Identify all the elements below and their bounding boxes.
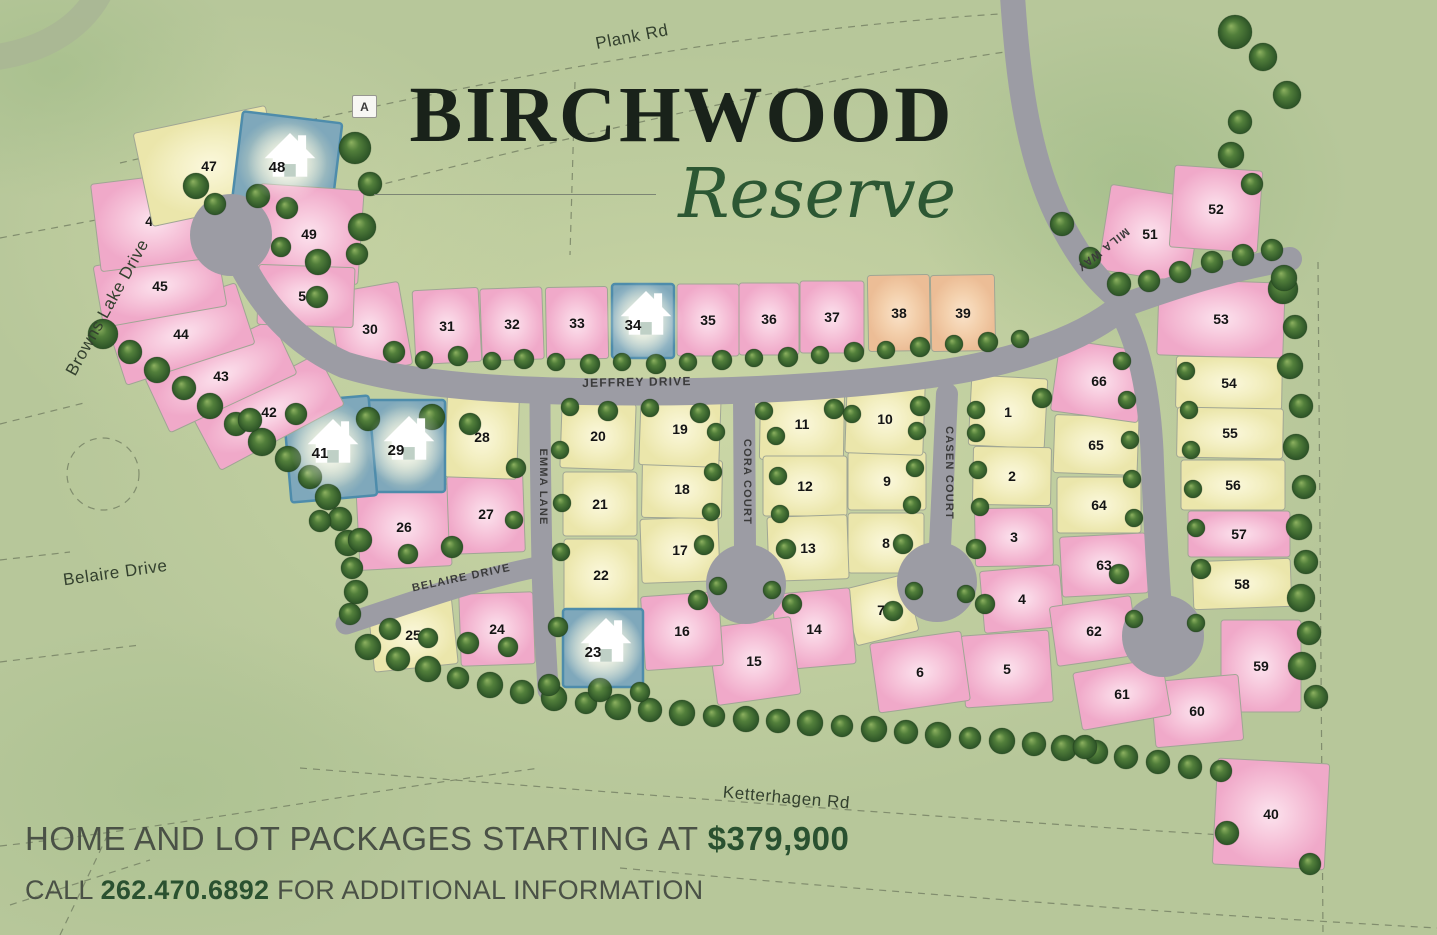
lot-4-number: 4 — [1018, 591, 1026, 607]
tree — [1218, 142, 1244, 168]
lot-52-number: 52 — [1208, 201, 1224, 217]
lot-39-number: 39 — [955, 305, 971, 321]
tree — [538, 674, 560, 696]
tree — [1182, 441, 1200, 459]
title-secondary: Reserve — [678, 159, 962, 230]
lot-54-number: 54 — [1221, 375, 1237, 391]
tree — [510, 680, 534, 704]
lot-62-number: 62 — [1086, 623, 1102, 639]
tree — [1283, 315, 1307, 339]
tree — [339, 132, 371, 164]
tree — [1232, 244, 1254, 266]
tree — [1032, 388, 1052, 408]
lot-65-number: 65 — [1088, 437, 1104, 453]
road-label-cora-court: CORA COURT — [741, 439, 753, 525]
lot-56-number: 56 — [1225, 477, 1241, 493]
lot-38-number: 38 — [891, 305, 907, 321]
tree — [945, 335, 963, 353]
footer-starting-price: $379,900 — [708, 820, 850, 857]
lot-29-number: 29 — [388, 442, 405, 459]
lot-23-sold-marker: 23 — [563, 608, 643, 688]
lot-5: 5 — [961, 630, 1054, 708]
lot-34-number: 34 — [625, 317, 642, 334]
tree — [978, 332, 998, 352]
tree — [1107, 272, 1131, 296]
tree — [346, 243, 368, 265]
tree — [975, 594, 995, 614]
road-label-jeffrey-drive: JEFFREY DRIVE — [582, 374, 692, 390]
road-surface-emma-lane-stub — [542, 566, 548, 690]
tree — [339, 603, 361, 625]
tree — [778, 347, 798, 367]
lot-55-number: 55 — [1222, 425, 1238, 441]
lot-6: 6 — [870, 631, 971, 713]
lot-24: 24 — [459, 592, 535, 667]
tree — [1283, 434, 1309, 460]
tree — [306, 286, 328, 308]
tree — [204, 193, 226, 215]
road-surface-casen-bulb — [897, 542, 977, 622]
tree — [679, 353, 697, 371]
lot-35: 35 — [677, 284, 739, 356]
tree — [709, 577, 727, 595]
lot-26-number: 26 — [396, 519, 412, 535]
tree — [694, 535, 714, 555]
title-primary: BIRCHWOOD — [402, 76, 962, 157]
tree — [348, 528, 372, 552]
tree — [457, 632, 479, 654]
footer-call-line: CALL 262.470.6892 FOR ADDITIONAL INFORMA… — [25, 875, 849, 906]
tree — [547, 353, 565, 371]
lot-14-number: 14 — [806, 621, 822, 637]
lot-63: 63 — [1059, 533, 1148, 597]
tree — [959, 727, 981, 749]
tree — [971, 498, 989, 516]
development-title: BIRCHWOOD Reserve — [402, 76, 962, 230]
lot-3-number: 3 — [1010, 529, 1018, 545]
lot-23-number: 23 — [585, 644, 602, 661]
tree — [1297, 621, 1321, 645]
tree — [1273, 81, 1301, 109]
lot-21-number: 21 — [592, 496, 608, 512]
tree — [459, 413, 481, 435]
tree — [415, 656, 441, 682]
tree — [1288, 652, 1316, 680]
lot-31-number: 31 — [439, 318, 455, 334]
tree — [1184, 480, 1202, 498]
tree — [561, 398, 579, 416]
road-label-emma-lane: EMMA LANE — [537, 449, 549, 526]
lot-8-number: 8 — [882, 535, 890, 551]
footer-call-text: CALL — [25, 875, 93, 905]
lot-59-number: 59 — [1253, 658, 1269, 674]
tree — [498, 637, 518, 657]
tree — [925, 722, 951, 748]
tree — [844, 342, 864, 362]
tree — [1011, 330, 1029, 348]
lot-32: 32 — [480, 287, 544, 361]
tree — [144, 357, 170, 383]
tree — [598, 401, 618, 421]
lot-20-number: 20 — [590, 428, 606, 444]
lot-60-number: 60 — [1189, 703, 1205, 719]
tree — [957, 585, 975, 603]
tree — [703, 705, 725, 727]
lot-17-number: 17 — [672, 542, 688, 558]
lot-21: 21 — [563, 472, 637, 536]
tree — [1180, 401, 1198, 419]
tree — [776, 539, 796, 559]
lot-58-number: 58 — [1234, 576, 1250, 592]
tree — [197, 393, 223, 419]
lot-44-number: 44 — [173, 326, 189, 342]
tree — [1191, 559, 1211, 579]
tree — [1022, 732, 1046, 756]
tree — [766, 709, 790, 733]
lot-13-number: 13 — [800, 540, 816, 556]
tree — [551, 441, 569, 459]
lot-22: 22 — [564, 539, 638, 611]
tree — [1114, 745, 1138, 769]
tree — [386, 647, 410, 671]
lot-51-number: 51 — [1142, 226, 1158, 242]
footer-packages-line: HOME AND LOT PACKAGES STARTING AT $379,9… — [25, 820, 849, 858]
tree — [415, 351, 433, 369]
tree — [355, 634, 381, 660]
lot-33-number: 33 — [569, 315, 585, 331]
footer: HOME AND LOT PACKAGES STARTING AT $379,9… — [25, 820, 849, 906]
lot-33: 33 — [545, 286, 608, 359]
tree — [883, 601, 903, 621]
tree — [824, 399, 844, 419]
lot-3: 3 — [974, 507, 1053, 566]
tree — [767, 427, 785, 445]
road-surface-east-bulb — [1122, 595, 1204, 677]
tree — [1215, 821, 1239, 845]
tree — [348, 213, 376, 241]
lot-36-number: 36 — [761, 311, 777, 327]
tree — [1121, 431, 1139, 449]
tree — [1177, 362, 1195, 380]
lot-29-sold-marker: 29 — [366, 406, 446, 486]
tree — [967, 424, 985, 442]
tree — [797, 710, 823, 736]
tree — [1118, 391, 1136, 409]
tree — [441, 536, 463, 558]
tree — [271, 237, 291, 257]
lot-6-number: 6 — [916, 664, 924, 680]
tree — [690, 403, 710, 423]
tree — [831, 715, 853, 737]
lot-15-number: 15 — [746, 653, 762, 669]
lot-10-number: 10 — [877, 411, 893, 427]
tree — [548, 617, 568, 637]
lot-48-number: 48 — [269, 159, 286, 176]
lot-45-number: 45 — [152, 278, 168, 294]
lot-24-number: 24 — [489, 621, 505, 637]
lot-40-number: 40 — [1263, 806, 1279, 822]
lot-57-number: 57 — [1231, 526, 1247, 542]
tree — [448, 346, 468, 366]
tree — [506, 458, 526, 478]
site-map-page: 1234567891011121314151617181920212224252… — [0, 0, 1437, 935]
tree — [769, 467, 787, 485]
tree — [1261, 239, 1283, 261]
lot-12-number: 12 — [797, 478, 813, 494]
footer-phone-number: 262.470.6892 — [101, 875, 270, 905]
tree — [906, 459, 924, 477]
tree — [843, 405, 861, 423]
lot-16-number: 16 — [674, 623, 690, 639]
tree — [669, 700, 695, 726]
tree — [1286, 514, 1312, 540]
lot-35-number: 35 — [700, 312, 716, 328]
tree — [1138, 270, 1160, 292]
tree — [1241, 173, 1263, 195]
lot-27-number: 27 — [478, 506, 494, 522]
lot-53-number: 53 — [1213, 311, 1229, 327]
tree — [1113, 352, 1131, 370]
tree — [328, 507, 352, 531]
tree — [1277, 353, 1303, 379]
tree — [712, 350, 732, 370]
lot-57: 57 — [1188, 511, 1290, 557]
tree — [1201, 251, 1223, 273]
lot-1-number: 1 — [1004, 404, 1012, 420]
tree — [969, 461, 987, 479]
tree — [552, 543, 570, 561]
lot-19-number: 19 — [672, 421, 688, 437]
lot-47-number: 47 — [201, 158, 217, 174]
lot-11-number: 11 — [795, 416, 810, 432]
tree — [1169, 261, 1191, 283]
tree — [910, 396, 930, 416]
tree — [755, 402, 773, 420]
lot-32-number: 32 — [504, 316, 520, 332]
lot-37-number: 37 — [824, 309, 840, 325]
tree — [483, 352, 501, 370]
tree — [763, 581, 781, 599]
tree — [1299, 853, 1321, 875]
lot-2-number: 2 — [1008, 468, 1016, 484]
lot-34-sold-marker: 34 — [603, 281, 683, 361]
road-label-casen-court: CASEN COURT — [943, 426, 955, 520]
tree — [580, 354, 600, 374]
tree — [398, 544, 418, 564]
tree — [1073, 735, 1097, 759]
tree — [908, 422, 926, 440]
tree — [1187, 614, 1205, 632]
tree — [183, 173, 209, 199]
tree — [1210, 760, 1232, 782]
tree — [630, 682, 650, 702]
tree — [1292, 475, 1316, 499]
tree — [1271, 265, 1297, 291]
road-label-plank-rd: Plank Rd — [594, 20, 670, 53]
lot-66-number: 66 — [1091, 373, 1107, 389]
tree — [379, 618, 401, 640]
tree — [514, 349, 534, 369]
tree — [1304, 685, 1328, 709]
lot-49-number: 49 — [301, 226, 317, 242]
lot-42-number: 42 — [261, 404, 277, 420]
tree — [1178, 755, 1202, 779]
tree — [733, 706, 759, 732]
tree — [344, 580, 368, 604]
lot-18-number: 18 — [674, 481, 690, 497]
footer-info-text: FOR ADDITIONAL INFORMATION — [277, 875, 703, 905]
tree — [1218, 15, 1252, 49]
tree — [861, 716, 887, 742]
tree — [910, 337, 930, 357]
tree — [745, 349, 763, 367]
tree — [989, 728, 1015, 754]
lot-22-number: 22 — [593, 567, 609, 583]
lot-43-number: 43 — [213, 368, 229, 384]
tree — [1050, 212, 1074, 236]
tree — [505, 511, 523, 529]
tree — [118, 340, 142, 364]
tree — [172, 376, 196, 400]
tree — [418, 628, 438, 648]
tree — [1123, 470, 1141, 488]
tree — [1289, 394, 1313, 418]
tree — [553, 494, 571, 512]
tree — [358, 172, 382, 196]
lot-36: 36 — [739, 283, 799, 355]
tree — [238, 408, 262, 432]
tree — [383, 341, 405, 363]
lot-41-number: 41 — [312, 445, 329, 462]
tree — [966, 539, 986, 559]
lot-48-sold-marker: 48 — [247, 123, 327, 203]
tree — [1228, 110, 1252, 134]
footer-packages-text: HOME AND LOT PACKAGES STARTING AT — [25, 820, 698, 857]
tree — [447, 667, 469, 689]
map-marker-a: A — [352, 95, 377, 118]
tree — [1146, 750, 1170, 774]
tree — [782, 594, 802, 614]
tree — [1109, 564, 1129, 584]
tree — [1125, 610, 1143, 628]
tree — [771, 505, 789, 523]
tree — [893, 534, 913, 554]
tree — [1125, 509, 1143, 527]
tree — [903, 496, 921, 514]
tree — [704, 463, 722, 481]
tree — [309, 510, 331, 532]
tree — [905, 582, 923, 600]
tree — [1249, 43, 1277, 71]
tree — [1187, 519, 1205, 537]
title-divider-rule — [374, 194, 656, 195]
tree — [702, 503, 720, 521]
lot-41-sold-marker: 41 — [290, 409, 370, 489]
lot-30-number: 30 — [362, 321, 378, 337]
tree — [1287, 584, 1315, 612]
tree — [305, 249, 331, 275]
lot-64-number: 64 — [1091, 497, 1107, 513]
tree — [811, 346, 829, 364]
lot-61-number: 61 — [1114, 686, 1130, 702]
tree — [641, 399, 659, 417]
tree — [688, 590, 708, 610]
tree — [477, 672, 503, 698]
lot-9-number: 9 — [883, 473, 891, 489]
tree — [341, 557, 363, 579]
tree — [1294, 550, 1318, 574]
tree — [967, 401, 985, 419]
lot-5-number: 5 — [1003, 661, 1011, 677]
tree — [894, 720, 918, 744]
tree — [877, 341, 895, 359]
tree — [707, 423, 725, 441]
